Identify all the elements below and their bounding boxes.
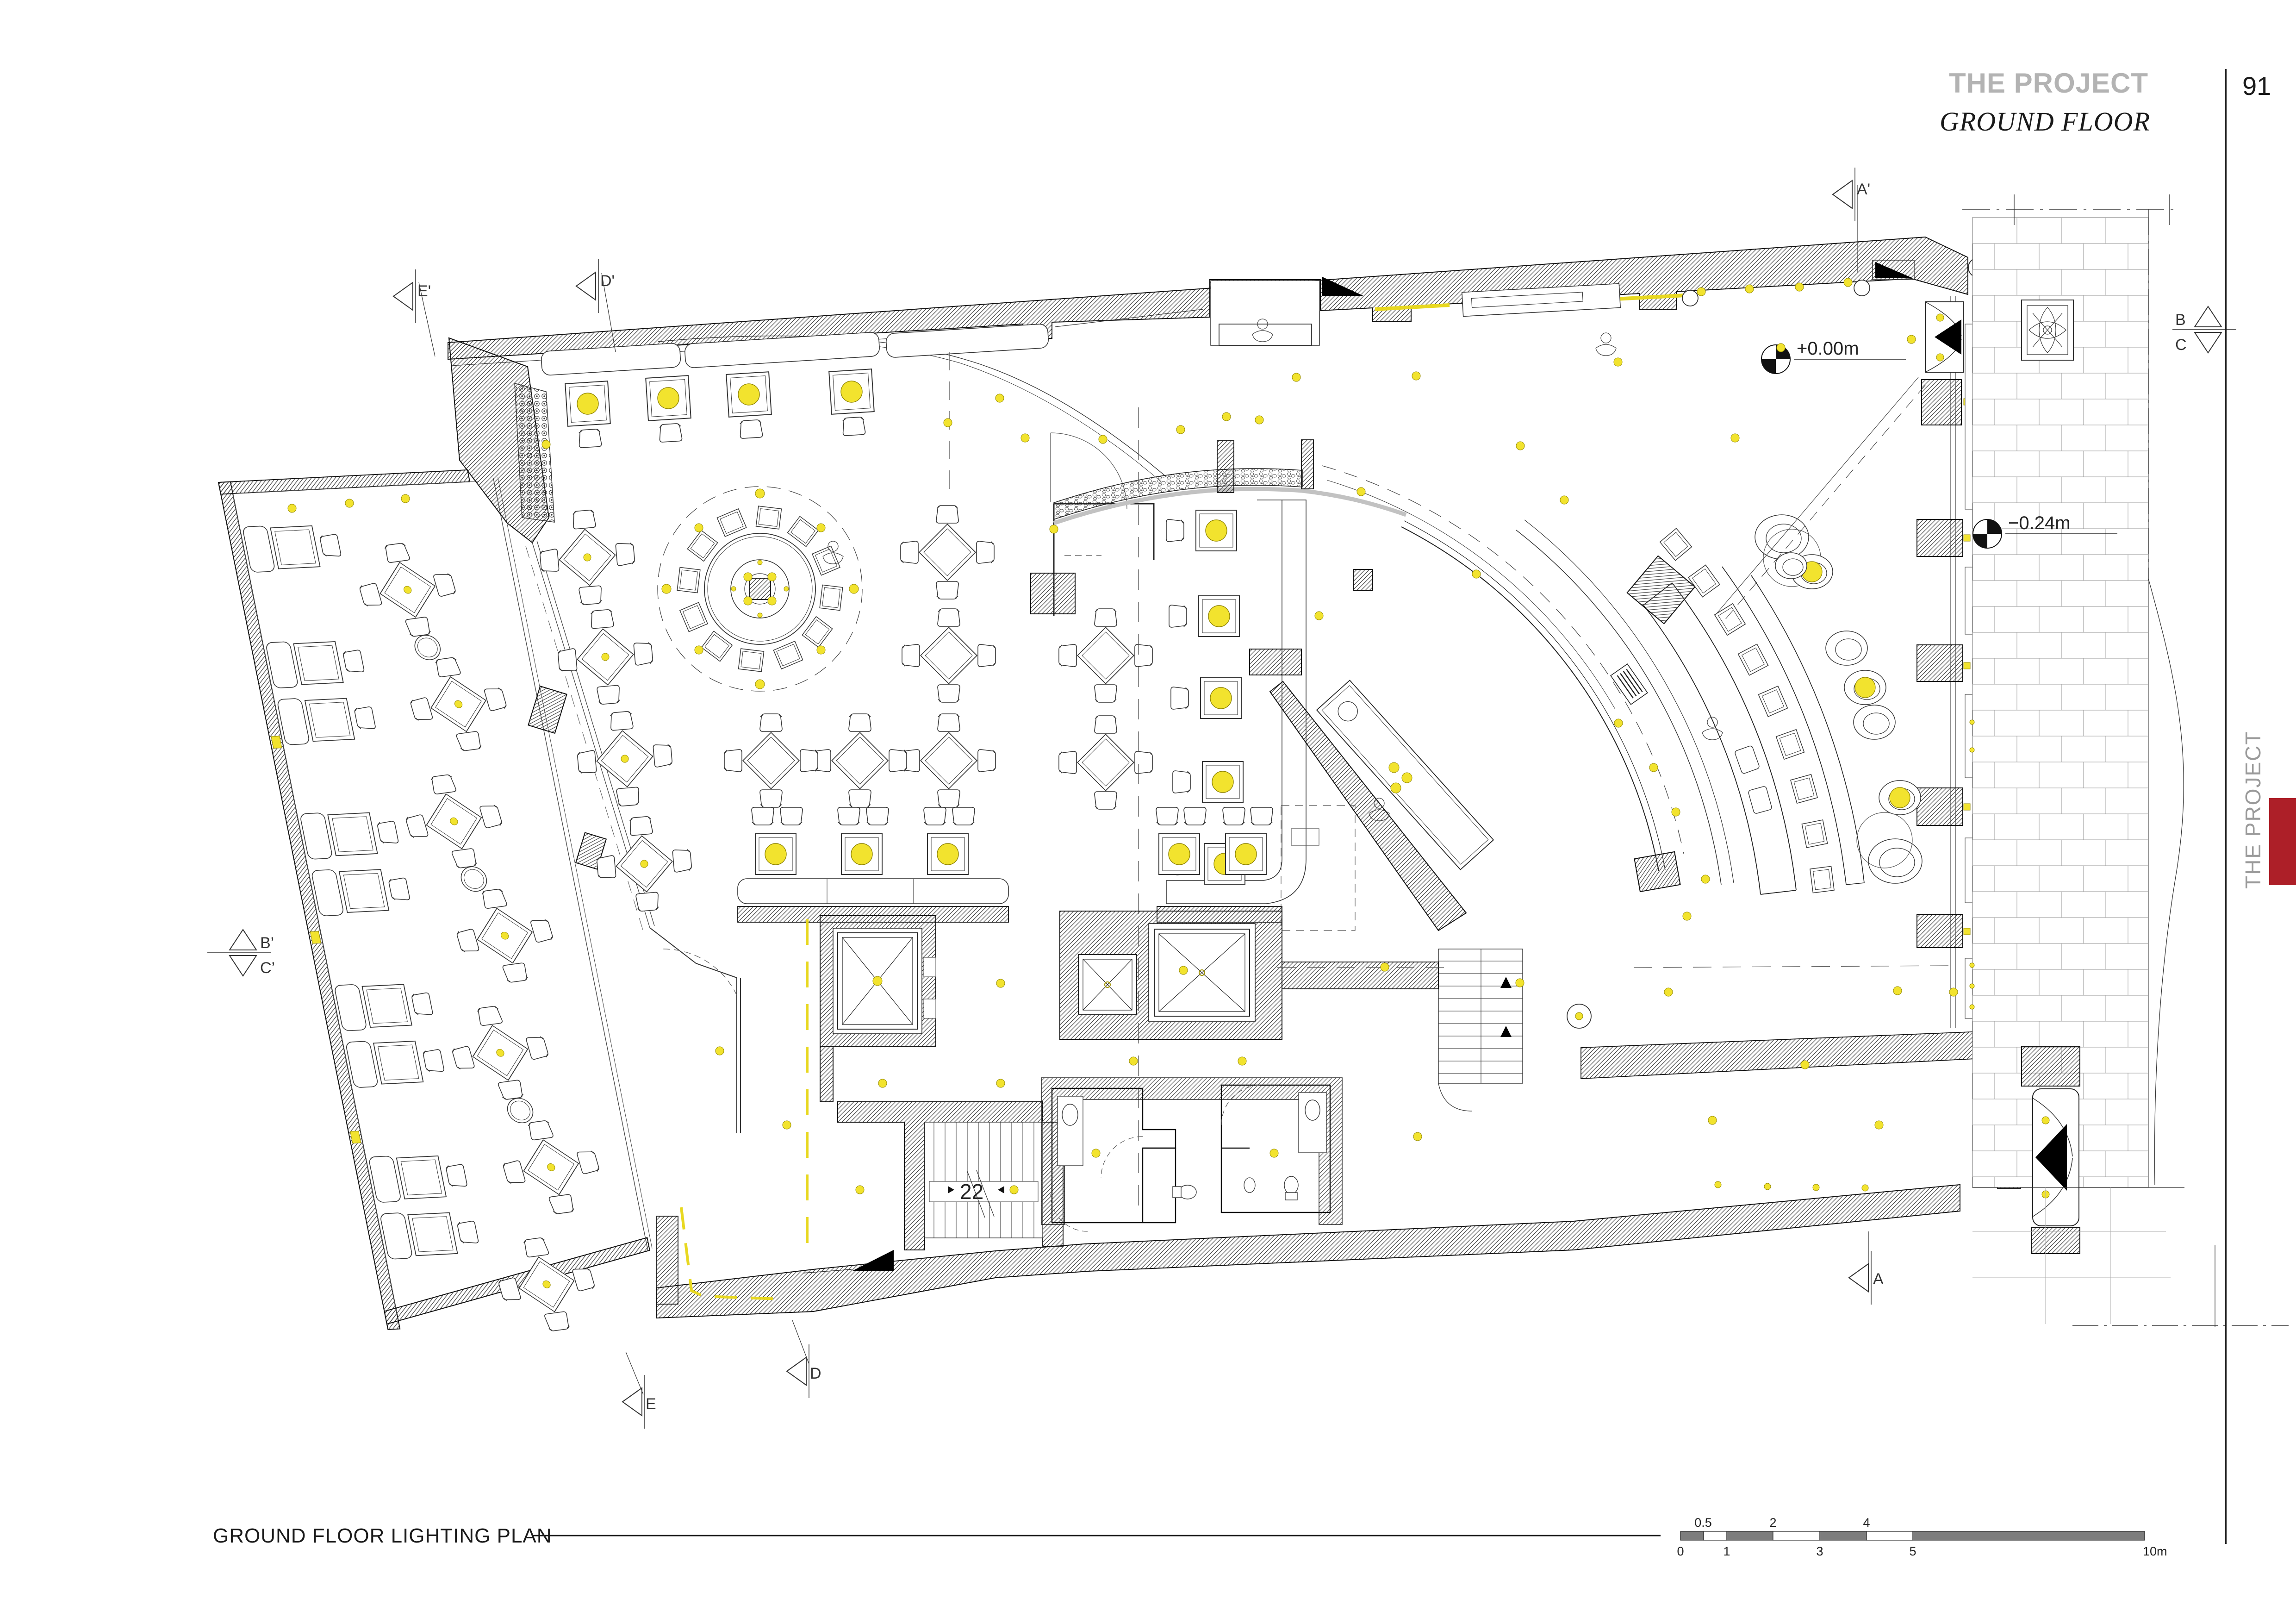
svg-text:1: 1 xyxy=(1723,1544,1730,1558)
svg-text:A: A xyxy=(1873,1270,1884,1288)
svg-text:B: B xyxy=(2175,311,2186,329)
svg-text:2: 2 xyxy=(1769,1516,1776,1530)
svg-text:C’: C’ xyxy=(260,959,275,977)
svg-text:E: E xyxy=(646,1395,656,1413)
svg-text:D: D xyxy=(810,1365,821,1382)
svg-text:4: 4 xyxy=(1863,1516,1870,1530)
svg-text:C: C xyxy=(2175,336,2187,354)
svg-text:0: 0 xyxy=(1677,1544,1684,1558)
svg-text:91: 91 xyxy=(2242,71,2271,100)
svg-text:5: 5 xyxy=(1909,1544,1916,1558)
svg-text:B’: B’ xyxy=(260,934,274,952)
svg-text:D': D' xyxy=(600,272,615,290)
svg-text:+0.00m: +0.00m xyxy=(1797,338,1859,359)
svg-text:10m: 10m xyxy=(2143,1544,2167,1558)
svg-text:GROUND FLOOR: GROUND FLOOR xyxy=(1940,106,2150,137)
svg-text:A': A' xyxy=(1857,181,1870,198)
svg-text:−0.24m: −0.24m xyxy=(2008,513,2071,533)
svg-text:THE PROJECT: THE PROJECT xyxy=(2241,731,2265,889)
svg-text:0.5: 0.5 xyxy=(1694,1516,1712,1530)
svg-text:THE PROJECT: THE PROJECT xyxy=(1949,68,2148,99)
svg-text:GROUND FLOOR LIGHTING PLAN: GROUND FLOOR LIGHTING PLAN xyxy=(213,1524,552,1547)
svg-text:3: 3 xyxy=(1816,1544,1823,1558)
